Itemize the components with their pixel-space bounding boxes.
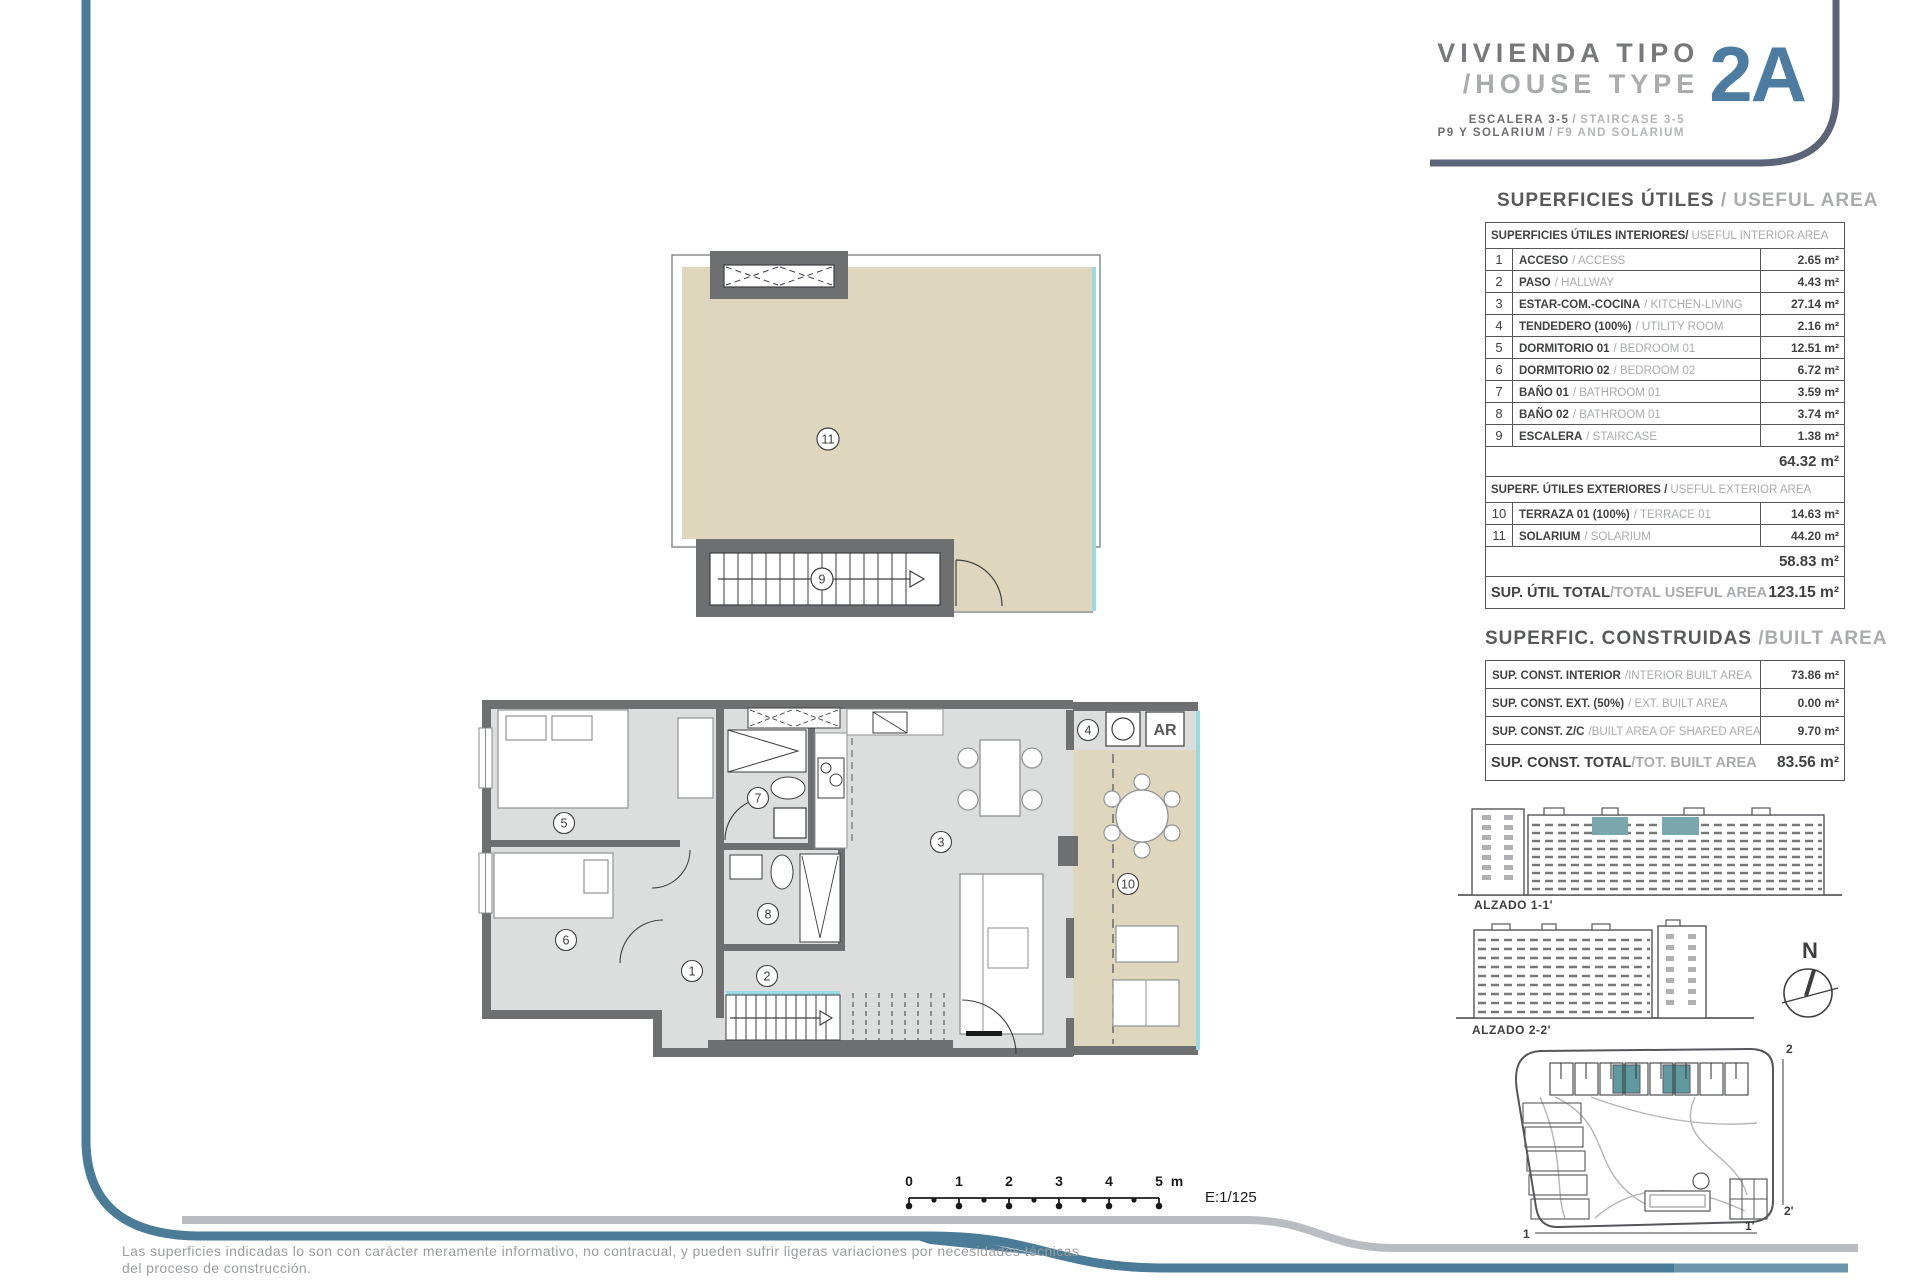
room-label-staircase: 9 — [811, 568, 833, 590]
svg-text:9: 9 — [819, 573, 826, 587]
svg-text:8: 8 — [765, 908, 772, 922]
scale-unit: m — [1171, 1173, 1183, 1189]
table-row: 2 PASO/ HALLWAY 4.43 m² — [1486, 270, 1844, 292]
built-area-title: SUPERFIC. CONSTRUIDAS /BUILT AREA — [1485, 628, 1887, 650]
highlighted-unit — [1662, 817, 1699, 835]
built-total-row: SUP. CONST. TOTAL/TOT. BUILT AREA 83.56 … — [1486, 744, 1844, 780]
disclaimer: Las superficies indicadas lo son con car… — [122, 1243, 1088, 1280]
round-table — [1116, 790, 1168, 842]
svg-text:3: 3 — [1055, 1173, 1063, 1189]
house-type-code: 2A — [1709, 38, 1805, 110]
useful-total-row: SUP. ÚTIL TOTAL/TOTAL USEFUL AREA 123.15… — [1486, 576, 1844, 608]
svg-text:6: 6 — [563, 934, 570, 948]
table-row: 10 TERRAZA 01 (100%)/ TERRACE 01 14.63 m… — [1486, 502, 1844, 524]
scale-bar: 0 1 2 3 4 5 m E:1/125 — [895, 1168, 1295, 1213]
floor-label-en: F9 AND SOLARIUM — [1557, 127, 1685, 139]
svg-text:4: 4 — [1105, 1173, 1113, 1189]
elevation-2-2: ALZADO 2-2' — [1452, 918, 1762, 1043]
tv — [966, 1031, 1002, 1036]
table-row: SUP. CONST. EXT. (50%)/ EXT. BUILT AREA … — [1486, 688, 1844, 716]
solarium-floor — [682, 267, 1093, 539]
useful-area-title: SUPERFICIES ÚTILES / USEFUL AREA — [1497, 190, 1878, 212]
disclaimer-es-line1: Las superficies indicadas lo son con car… — [122, 1243, 1088, 1260]
table-row: 8 BAÑO 02/ BATHROOM 01 3.74 m² — [1486, 402, 1844, 424]
table-row: 9 ESCALERA/ STAIRCASE 1.38 m² — [1486, 424, 1844, 446]
built-total-value: 83.56 m² — [1777, 754, 1844, 772]
header-subtitle: ESCALERA 3-5/STAIRCASE 3-5 P9 Y SOLARIUM… — [1395, 114, 1685, 140]
site-plan: 2 2' 1 1' — [1495, 1033, 1825, 1248]
svg-text:1: 1 — [955, 1173, 963, 1189]
solarium-floor-plan: 11 9 — [660, 243, 1130, 635]
svg-text:1: 1 — [689, 965, 696, 979]
interior-subtotal: 64.32 m² — [1486, 446, 1844, 476]
sofa — [960, 874, 1043, 1034]
plan-sheet: VIVIENDA TIPO /HOUSE TYPE 2A ESCALERA 3-… — [0, 0, 1920, 1280]
highlighted-unit — [1592, 817, 1628, 835]
closet — [748, 708, 840, 728]
room-label-solarium: 11 — [817, 428, 839, 450]
table-row: 11 SOLARIUM/ SOLARIUM 44.20 m² — [1486, 524, 1844, 546]
svg-text:2': 2' — [1784, 1204, 1794, 1218]
sheet-header: VIVIENDA TIPO /HOUSE TYPE 2A ESCALERA 3-… — [1395, 38, 1805, 140]
wardrobe — [678, 718, 713, 798]
svg-text:5: 5 — [561, 817, 568, 831]
main-floor-plan: AR — [468, 688, 1213, 1073]
elevation-1-1: ALZADO 1-1' — [1452, 795, 1847, 913]
table-row: 1 ACCESO/ ACCESS 2.65 m² — [1486, 248, 1844, 270]
compass-north-label: N — [1802, 938, 1818, 963]
floor-label-es: P9 Y SOLARIUM — [1438, 127, 1547, 139]
svg-text:7: 7 — [755, 792, 762, 806]
terrace-glass-edge — [1196, 711, 1200, 1050]
lounger — [1116, 926, 1178, 962]
table-row: 7 BAÑO 01/ BATHROOM 01 3.59 m² — [1486, 380, 1844, 402]
interior-area-header: SUPERFICIES ÚTILES INTERIORES/ USEFUL IN… — [1486, 223, 1844, 248]
disclaimer-es-line2: del proceso de construcción. — [122, 1260, 1088, 1277]
svg-text:5: 5 — [1155, 1173, 1163, 1189]
exterior-subtotal: 58.83 m² — [1486, 546, 1844, 576]
staircase-label-es: ESCALERA 3-5 — [1469, 114, 1570, 126]
svg-text:11: 11 — [822, 433, 835, 447]
table-row: 4 TENDEDERO (100%)/ UTILITY ROOM 2.16 m² — [1486, 314, 1844, 336]
table-row: 6 DORMITORIO 02/ BEDROOM 02 6.72 m² — [1486, 358, 1844, 380]
exterior-area-header: SUPERF. ÚTILES EXTERIORES / USEFUL EXTER… — [1486, 476, 1844, 502]
svg-text:2: 2 — [1786, 1042, 1793, 1056]
svg-text:4: 4 — [1085, 724, 1092, 738]
svg-text:2: 2 — [1005, 1173, 1013, 1189]
pergola — [710, 251, 848, 299]
table-row: 3 ESTAR-COM.-COCINA/ KITCHEN-LIVING 27.1… — [1486, 292, 1844, 314]
svg-text:3: 3 — [938, 836, 945, 850]
table-row: SUP. CONST. Z/C/BUILT AREA OF SHARED ARE… — [1486, 716, 1844, 744]
table-row: 5 DORMITORIO 01/ BEDROOM 01 12.51 m² — [1486, 336, 1844, 358]
useful-total-value: 123.15 m² — [1768, 584, 1844, 602]
scale-ratio: E:1/125 — [1205, 1189, 1257, 1206]
table-row: SUP. CONST. INTERIOR/INTERIOR BUILT AREA… — [1486, 661, 1844, 688]
built-area-table: SUP. CONST. INTERIOR/INTERIOR BUILT AREA… — [1485, 660, 1845, 781]
svg-text:1': 1' — [1745, 1219, 1755, 1233]
glass-balustrade — [1092, 267, 1096, 611]
title-spanish: VIVIENDA TIPO — [1437, 38, 1699, 69]
svg-text:2: 2 — [764, 970, 771, 984]
compass: N — [1762, 938, 1854, 1026]
staircase-label-en: STAIRCASE 3-5 — [1580, 114, 1685, 126]
svg-text:0: 0 — [905, 1173, 913, 1189]
ar-unit-label: AR — [1153, 722, 1177, 739]
svg-text:1: 1 — [1523, 1227, 1530, 1241]
useful-area-table: SUPERFICIES ÚTILES INTERIORES/ USEFUL IN… — [1485, 222, 1845, 609]
title-english: /HOUSE TYPE — [1437, 69, 1699, 100]
svg-text:10: 10 — [1121, 878, 1135, 892]
compass-needle — [1806, 970, 1814, 996]
svg-text:ALZADO 1-1': ALZADO 1-1' — [1474, 898, 1553, 912]
